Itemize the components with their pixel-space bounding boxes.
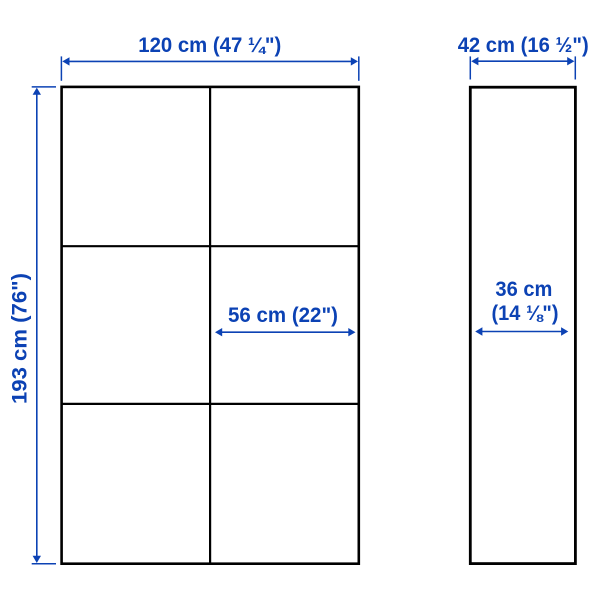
svg-text:42 cm (16 ½"): 42 cm (16 ½")	[458, 34, 589, 57]
svg-text:56 cm (22"): 56 cm (22")	[228, 304, 338, 327]
svg-text:120 cm (47 ¼"): 120 cm (47 ¼")	[138, 34, 281, 57]
svg-text:36 cm: 36 cm	[495, 278, 552, 301]
svg-text:(14 ⅛"): (14 ⅛")	[492, 302, 559, 325]
svg-text:193 cm (76"): 193 cm (76")	[9, 273, 32, 404]
